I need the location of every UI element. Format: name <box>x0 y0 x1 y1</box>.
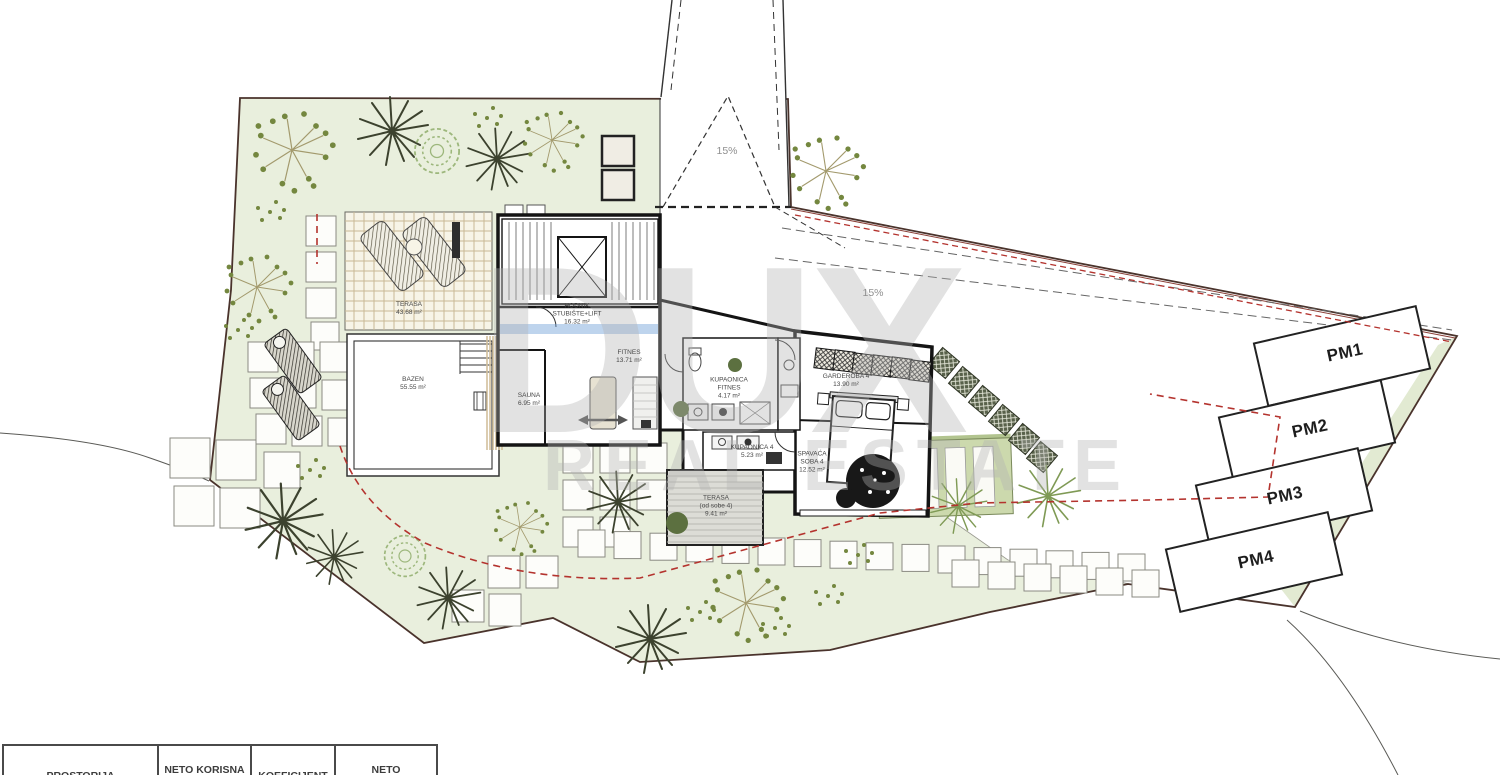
table-header-neto-korisna: NETO KORISNA POVRŠINA (m²) <box>159 746 252 775</box>
paver <box>220 488 260 528</box>
paver <box>830 541 857 568</box>
area-table: PROSTORIJA NETO KORISNA POVRŠINA (m²) KO… <box>2 744 438 775</box>
paver <box>988 562 1015 589</box>
paver <box>170 438 210 478</box>
paver <box>306 252 336 282</box>
paver <box>902 544 929 571</box>
paver <box>264 452 300 488</box>
paver <box>1060 566 1087 593</box>
paver <box>637 443 667 473</box>
tree-olive <box>790 135 866 211</box>
paver <box>563 443 593 473</box>
paver <box>952 560 979 587</box>
paver <box>489 594 521 626</box>
paver <box>614 532 641 559</box>
paver <box>1096 568 1123 595</box>
paver <box>320 342 350 372</box>
site-plan-drawing <box>0 0 1500 775</box>
paver <box>578 530 605 557</box>
paver <box>600 443 630 473</box>
table-header-koeficijent: KOEFICIJENT <box>252 746 336 775</box>
paver <box>488 556 520 588</box>
paver <box>306 216 336 246</box>
paver <box>1132 570 1159 597</box>
pergola-terrace <box>345 212 492 330</box>
paver <box>794 540 821 567</box>
pool <box>347 334 499 476</box>
table-header-prostorija: PROSTORIJA <box>4 746 159 775</box>
paver <box>637 480 667 510</box>
paver <box>306 288 336 318</box>
paver <box>174 486 214 526</box>
bedroom-terrace <box>667 470 763 545</box>
site-plan-page: DUX REAL ESTATE TERASA43.68 m²BAZEN55.55… <box>0 0 1500 775</box>
paver <box>1024 564 1051 591</box>
access-road <box>660 0 789 215</box>
paver <box>563 480 593 510</box>
paver <box>866 543 893 570</box>
paver <box>216 440 256 480</box>
table-header-neto-obracunska: NETO OBRAČUNSKA <box>336 746 436 775</box>
